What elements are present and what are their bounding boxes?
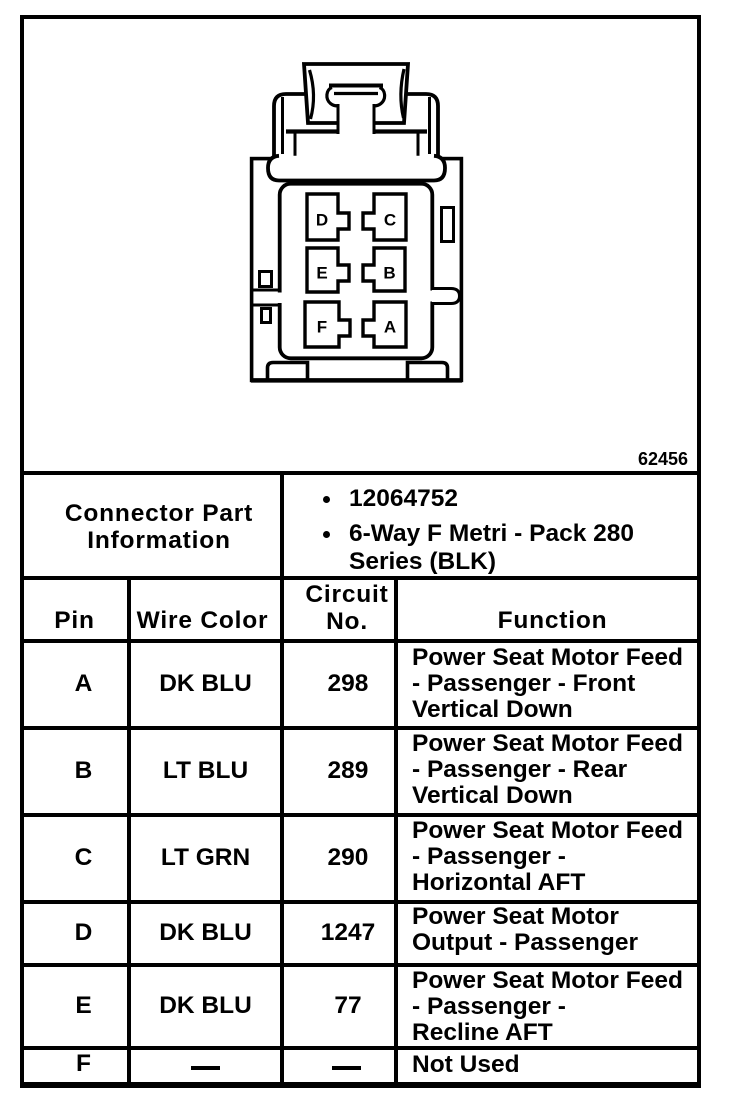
svg-text:E: E (316, 264, 327, 283)
svg-text:F: F (317, 318, 327, 337)
svg-text:C: C (384, 211, 396, 230)
svg-text:A: A (384, 318, 396, 337)
svg-text:B: B (383, 264, 395, 283)
svg-text:D: D (316, 211, 328, 230)
